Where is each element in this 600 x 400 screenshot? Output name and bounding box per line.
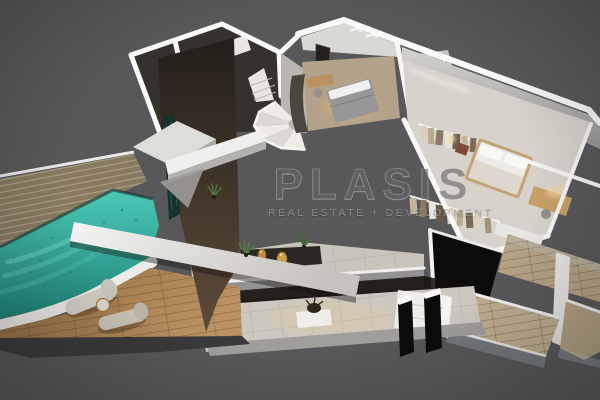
desk-chair: [541, 209, 551, 219]
floorplan-render: PLASIS REAL ESTATE + DEVELOPMENT: [0, 0, 600, 400]
side-table: [97, 299, 110, 312]
bedside-lamp: [449, 136, 456, 143]
balcony-planks: [498, 234, 600, 302]
desk-chair: [314, 89, 323, 98]
black-panel: [398, 299, 414, 357]
black-panel: [424, 293, 442, 353]
scene-svg: [0, 0, 600, 400]
